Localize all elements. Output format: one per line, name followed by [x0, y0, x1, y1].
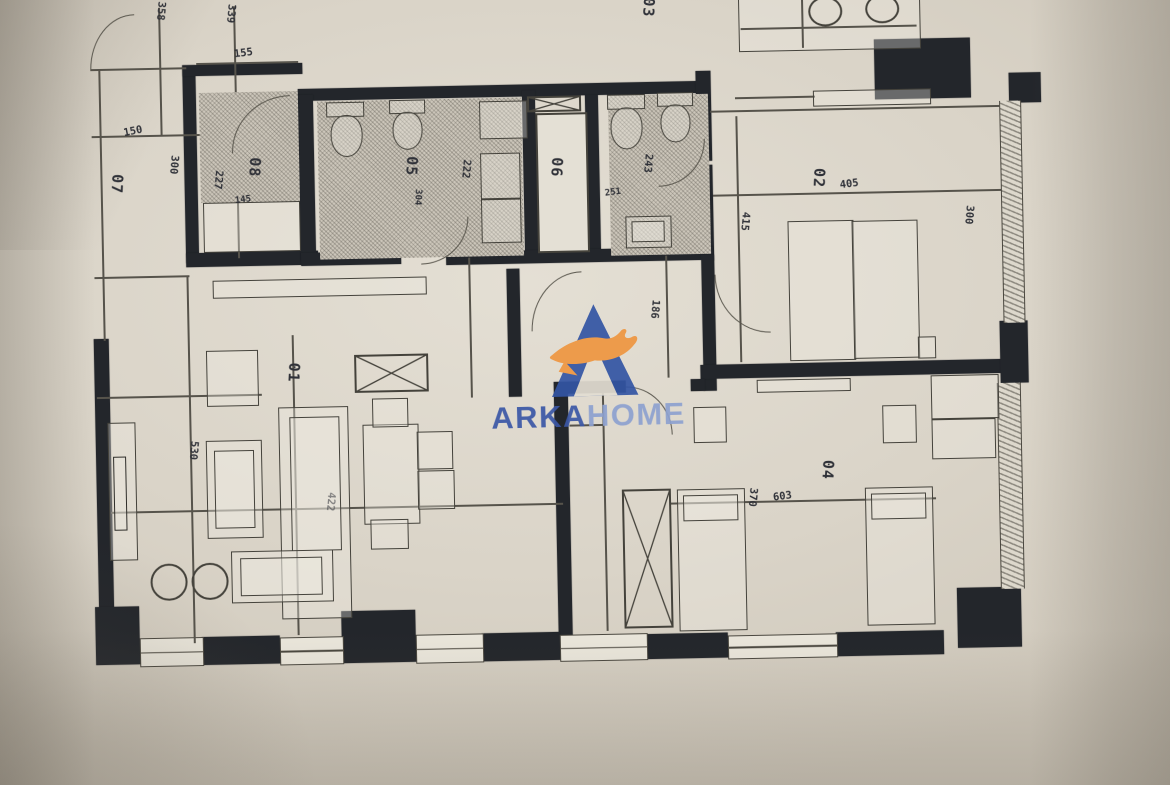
dim-300-terrace: 300 — [168, 155, 180, 175]
nightstand — [882, 405, 917, 444]
boundary-line — [735, 96, 815, 99]
bathroom-cabinet — [481, 199, 522, 244]
room-label-07: 07 — [109, 174, 125, 195]
dim-405: 405 — [839, 178, 859, 191]
boundary-line — [94, 275, 189, 278]
room-label-06: 06 — [548, 157, 564, 178]
logo-mark-icon — [536, 299, 651, 402]
vent-x-symbol — [527, 95, 581, 112]
room-label-04: 04 — [820, 460, 836, 481]
wardrobe-x-symbol — [622, 489, 674, 629]
sofa-cushion — [289, 416, 342, 551]
tv-stand-x-symbol — [354, 353, 429, 392]
boundary-line — [468, 258, 472, 398]
wall-segment — [1009, 72, 1042, 103]
balcony-railing — [997, 383, 1025, 589]
wardrobe — [931, 374, 1000, 419]
chair — [372, 398, 409, 428]
dim-358: 358 — [155, 1, 167, 21]
dim-304: 304 — [412, 189, 422, 206]
sideboard — [213, 276, 427, 298]
dim-155: 155 — [233, 47, 253, 60]
room-label-03: 03 — [640, 0, 656, 18]
side-table — [206, 350, 259, 407]
wall-corner — [95, 606, 140, 665]
window — [280, 636, 345, 665]
dim-415: 415 — [739, 211, 751, 231]
chair — [417, 431, 454, 470]
wall-segment — [186, 251, 318, 268]
window — [416, 633, 485, 663]
wall-segment — [182, 63, 302, 76]
wall-corner — [957, 587, 1022, 648]
wall-pier — [202, 635, 281, 665]
wardrobe-low — [757, 378, 851, 393]
pouf — [191, 563, 229, 601]
logo-wordmark: ARKAHOME — [491, 396, 686, 437]
pouf — [150, 563, 188, 601]
door-arc — [89, 14, 135, 70]
dim-227: 227 — [212, 170, 224, 190]
nightstand — [918, 336, 936, 358]
floor-plan-photo: 358 339 155 150 300 07 227 08 145 05 304… — [0, 0, 1170, 785]
wall-segment — [1000, 320, 1029, 383]
bathroom-cabinet — [480, 153, 521, 200]
dim-243: 243 — [642, 153, 654, 173]
wall-pier — [482, 632, 561, 662]
window — [728, 633, 838, 659]
dim-222: 222 — [460, 159, 472, 179]
dim-422: 422 — [324, 492, 336, 512]
chair — [370, 519, 409, 550]
dim-339: 339 — [225, 4, 237, 24]
room-label-05: 05 — [403, 156, 419, 177]
boundary-line — [98, 69, 105, 341]
chair — [417, 470, 455, 510]
wall-segment — [182, 65, 199, 263]
sofa-chaise-cushion — [240, 557, 323, 597]
dim-530: 530 — [187, 441, 199, 461]
kitchen-bar — [813, 88, 931, 106]
tv-screen — [113, 457, 127, 531]
dimension-line — [927, 189, 987, 192]
dining-table — [362, 424, 420, 525]
logo-word-primary: ARKA — [491, 398, 587, 435]
closet-06 — [535, 112, 590, 253]
room-label-01: 01 — [285, 362, 301, 383]
bed-mattress — [851, 220, 920, 359]
logo-word-secondary: HOME — [586, 396, 686, 434]
balcony-railing — [999, 100, 1025, 322]
arka-home-logo: ARKAHOME — [478, 293, 712, 445]
wall-pier — [341, 610, 416, 663]
window — [560, 633, 649, 662]
bathroom-shelf — [479, 100, 528, 139]
door-arc — [715, 274, 771, 334]
room-label-02: 02 — [811, 168, 827, 189]
dimension-line — [735, 116, 741, 362]
bed-mattress — [787, 220, 856, 361]
wall-pier — [836, 630, 944, 656]
room-label-08: 08 — [246, 157, 262, 178]
dim-370: 370 — [746, 487, 758, 507]
sink-basin — [631, 221, 664, 243]
dim-603: 603 — [772, 490, 792, 503]
armchair-cushion — [214, 450, 256, 529]
dim-300-balcony: 300 — [963, 205, 975, 225]
boundary-line — [710, 105, 1000, 112]
pillow — [683, 494, 739, 521]
wardrobe — [931, 418, 996, 459]
dimension-line — [158, 8, 162, 136]
storage-cabinet — [203, 201, 301, 253]
pillow — [871, 492, 927, 519]
wall-pier — [646, 632, 728, 659]
